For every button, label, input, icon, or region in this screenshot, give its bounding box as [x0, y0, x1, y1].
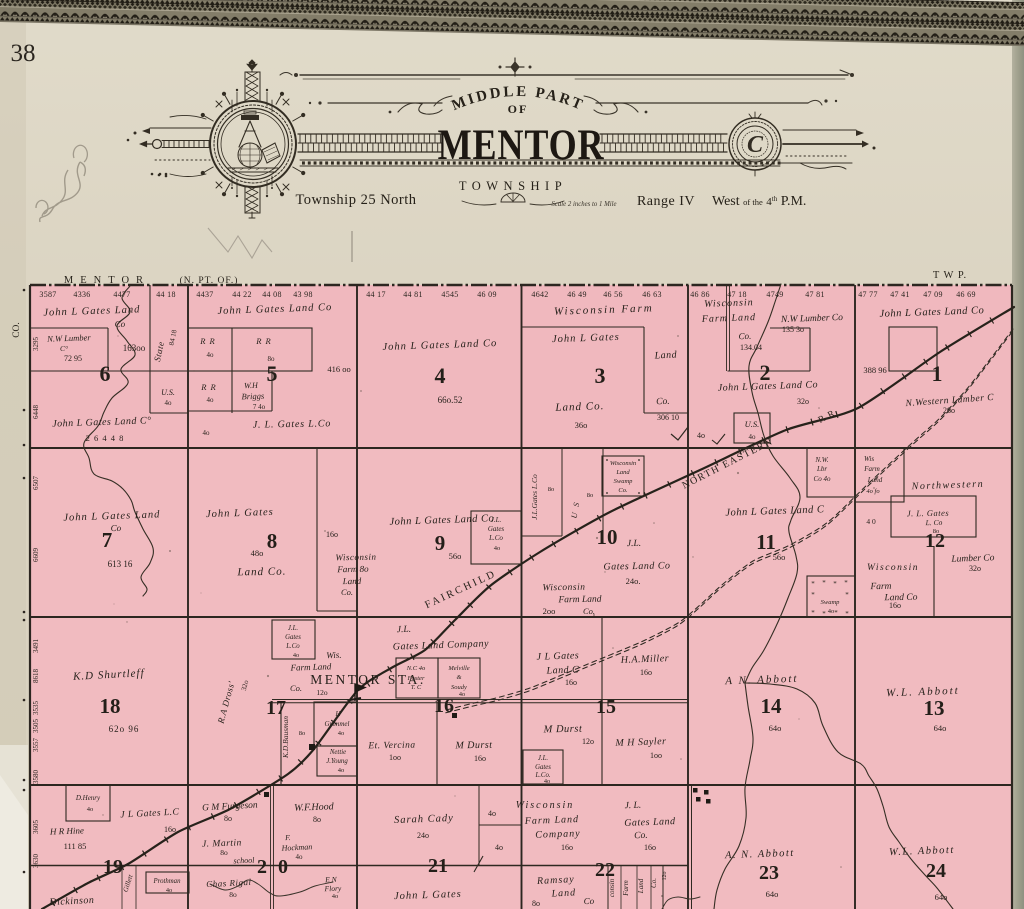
svg-text:J.L.: J.L.	[627, 539, 641, 549]
svg-text:4: 4	[435, 363, 446, 388]
svg-text:4o: 4o	[338, 767, 345, 774]
svg-text:H R Hine: H R Hine	[49, 825, 84, 836]
svg-text:2 0: 2 0	[257, 856, 291, 878]
svg-text:J.L.: J.L.	[491, 516, 502, 524]
svg-text:Wisconsin: Wisconsin	[610, 460, 636, 467]
svg-text:613 16: 613 16	[108, 559, 133, 569]
svg-text:22: 22	[595, 859, 615, 881]
svg-text:4o: 4o	[697, 431, 705, 440]
svg-text:4o: 4o	[203, 429, 211, 437]
svg-text:36o: 36o	[575, 420, 588, 430]
svg-text:24o: 24o	[417, 831, 429, 840]
svg-text:Wisconsin: Wisconsin	[335, 552, 376, 563]
svg-text:*: *	[822, 579, 826, 587]
svg-text:Wis.: Wis.	[326, 650, 342, 661]
svg-text:12o: 12o	[316, 688, 328, 697]
svg-text:4545: 4545	[441, 290, 458, 299]
svg-text:62o 96: 62o 96	[109, 724, 140, 734]
svg-text:44 22: 44 22	[232, 290, 252, 299]
svg-text:1oo: 1oo	[389, 753, 401, 762]
svg-text:Lbr: Lbr	[816, 465, 827, 473]
svg-text:R R: R R	[200, 382, 217, 392]
svg-text:Gates: Gates	[535, 764, 551, 771]
svg-text:J. L. Gates L.Co: J. L. Gates L.Co	[253, 418, 332, 430]
svg-text:*: *	[811, 580, 815, 588]
svg-text:Gates: Gates	[488, 525, 505, 533]
svg-text:Land C: Land C	[545, 664, 579, 676]
svg-text:TOWNSHIP: TOWNSHIP	[459, 179, 567, 193]
svg-text:T W P.: T W P.	[933, 270, 967, 281]
svg-text:Land Co.: Land Co.	[554, 400, 604, 414]
svg-text:4749: 4749	[766, 290, 783, 299]
svg-text:111 85: 111 85	[64, 841, 87, 851]
svg-text:Grimmel: Grimmel	[325, 720, 350, 728]
svg-text:Farm: Farm	[622, 880, 630, 897]
svg-text:48o: 48o	[251, 548, 264, 558]
svg-text:4o: 4o	[459, 691, 465, 698]
svg-text:R R: R R	[255, 336, 272, 346]
svg-text:Nettie: Nettie	[329, 749, 346, 756]
svg-text:W.L. Abbott: W.L. Abbott	[889, 845, 955, 858]
svg-text:4437: 4437	[196, 290, 213, 299]
svg-text:2 6 4 4 8: 2 6 4 4 8	[86, 433, 125, 443]
svg-text:Briggs: Briggs	[241, 391, 265, 402]
svg-text:Co.: Co.	[618, 487, 628, 494]
svg-text:6507: 6507	[32, 476, 40, 491]
svg-text:*: *	[833, 580, 837, 588]
svg-text:Land: Land	[653, 349, 678, 361]
svg-text:Scale 2 inches to 1 Mile: Scale 2 inches to 1 Mile	[551, 201, 616, 208]
svg-text:38: 38	[11, 40, 36, 67]
svg-text:Farm: Farm	[863, 465, 880, 473]
svg-text:*: *	[844, 579, 848, 587]
svg-text:*: *	[811, 591, 815, 599]
svg-text:4o: 4o	[488, 809, 496, 818]
svg-text:12o: 12o	[582, 737, 594, 746]
svg-text:14: 14	[761, 694, 783, 718]
svg-text:Ramsay: Ramsay	[536, 874, 575, 887]
svg-text:J. L. Gates: J. L. Gates	[907, 508, 950, 519]
svg-text:Co 4o: Co 4o	[814, 475, 831, 483]
svg-text:L.Co: L.Co	[285, 643, 300, 650]
svg-text:21: 21	[428, 855, 448, 877]
svg-text:66o.52: 66o.52	[438, 395, 463, 405]
svg-text:4642: 4642	[531, 290, 548, 299]
svg-text:Township 25 North: Township 25 North	[295, 192, 416, 208]
svg-text:16o: 16o	[640, 668, 652, 677]
svg-text:Wisconsin: Wisconsin	[867, 563, 919, 573]
svg-text:Swamp: Swamp	[614, 478, 634, 485]
svg-text:Wisconsin: Wisconsin	[542, 583, 585, 594]
svg-text:46 49: 46 49	[567, 290, 587, 299]
svg-text:*: *	[845, 591, 849, 599]
svg-text:47 41: 47 41	[890, 290, 910, 299]
svg-text:24o.: 24o.	[626, 576, 641, 586]
svg-text:12o: 12o	[662, 872, 668, 881]
svg-text:47 09: 47 09	[923, 290, 943, 299]
svg-text:8o: 8o	[299, 730, 306, 737]
svg-text:Co.: Co.	[290, 683, 302, 693]
svg-text:4o: 4o	[207, 396, 215, 404]
svg-text:Gates Land: Gates Land	[624, 816, 676, 829]
svg-text:*: *	[845, 610, 849, 618]
svg-text:*: *	[811, 609, 815, 617]
svg-text:6: 6	[100, 361, 111, 386]
svg-text:J.L.: J.L.	[288, 625, 298, 632]
svg-text:46 69: 46 69	[956, 290, 976, 299]
svg-text:4 0: 4 0	[866, 517, 876, 526]
svg-text:56o: 56o	[773, 552, 786, 562]
svg-text:4336: 4336	[73, 290, 90, 299]
svg-text:46 09: 46 09	[477, 290, 497, 299]
svg-text:Soudy: Soudy	[451, 684, 467, 691]
svg-text:1: 1	[932, 361, 943, 386]
svg-text:32o: 32o	[797, 397, 809, 406]
svg-text:64o: 64o	[769, 723, 782, 733]
svg-text:8618: 8618	[32, 669, 40, 684]
svg-text:4o: 4o	[544, 778, 550, 785]
svg-text:C: C	[747, 132, 764, 158]
svg-text:CO.: CO.	[12, 322, 22, 338]
svg-text:4o: 4o	[749, 433, 757, 441]
svg-text:16o: 16o	[644, 843, 656, 852]
svg-text:4o: 4o	[495, 843, 503, 852]
svg-text:134.04: 134.04	[740, 343, 762, 352]
svg-text:23: 23	[759, 862, 779, 884]
svg-text:1oo: 1oo	[650, 751, 662, 760]
svg-text:Company: Company	[535, 828, 581, 841]
svg-text:Farm Land: Farm Land	[701, 312, 757, 325]
svg-text:Foster: Foster	[407, 675, 425, 682]
svg-text:Farm Land: Farm Land	[557, 595, 601, 606]
svg-text:17: 17	[266, 697, 286, 719]
svg-text:Wisconsin: Wisconsin	[704, 297, 754, 310]
svg-text:135 3o: 135 3o	[782, 325, 804, 334]
svg-text:J.Young: J.Young	[326, 758, 348, 765]
svg-text:12: 12	[925, 530, 945, 552]
svg-text:4o: 4o	[332, 893, 339, 900]
svg-text:Land: Land	[615, 469, 630, 476]
svg-text:M Durst: M Durst	[454, 740, 492, 752]
svg-text:L. Co: L. Co	[925, 518, 943, 527]
svg-text:Et. Vercina: Et. Vercina	[367, 741, 416, 752]
svg-text:64o: 64o	[935, 892, 948, 902]
svg-text:Land: Land	[637, 878, 645, 894]
svg-text:Flory: Flory	[323, 884, 342, 894]
svg-text:3535: 3535	[32, 701, 40, 716]
svg-text:Prothman: Prothman	[153, 878, 182, 885]
svg-text:school: school	[233, 856, 255, 866]
svg-text:3: 3	[595, 363, 606, 388]
svg-text:Farm 8o: Farm 8o	[336, 564, 369, 575]
svg-text:U.S.: U.S.	[161, 388, 175, 397]
svg-text:44 08: 44 08	[262, 290, 282, 299]
svg-text:4o fo: 4o fo	[866, 488, 880, 495]
svg-text:J.L.: J.L.	[538, 755, 548, 762]
svg-text:56o: 56o	[449, 551, 462, 561]
svg-text:4o: 4o	[165, 399, 173, 407]
svg-text:4o: 4o	[338, 730, 345, 737]
svg-text:18: 18	[100, 694, 121, 718]
svg-text:Land: Land	[550, 887, 576, 899]
svg-text:44 18: 44 18	[156, 290, 176, 299]
svg-text:8o: 8o	[313, 815, 321, 824]
svg-text:24: 24	[926, 860, 946, 882]
svg-text:388 96: 388 96	[863, 365, 886, 375]
svg-text:4o: 4o	[207, 351, 215, 359]
svg-text:W.H: W.H	[244, 381, 259, 391]
svg-text:64o: 64o	[934, 723, 947, 733]
svg-text:16o: 16o	[889, 601, 901, 610]
svg-text:46 56: 46 56	[603, 290, 623, 299]
svg-text:Hockman: Hockman	[280, 842, 312, 853]
svg-text:32o: 32o	[969, 564, 981, 573]
svg-text:8o: 8o	[220, 848, 228, 857]
svg-text:3630: 3630	[32, 854, 40, 869]
svg-text:L.Co: L.Co	[488, 534, 503, 542]
svg-text:3295: 3295	[32, 337, 40, 352]
svg-text:West of the 4th P.M.: West of the 4th P.M.	[712, 194, 806, 209]
svg-text:46 63: 46 63	[642, 290, 662, 299]
svg-text:Wis: Wis	[864, 455, 874, 463]
svg-text:Land: Land	[867, 476, 883, 484]
svg-text:M Durst: M Durst	[542, 724, 583, 736]
svg-text:Co: Co	[114, 319, 125, 329]
svg-text:7: 7	[102, 528, 113, 552]
svg-text:Swamp: Swamp	[821, 599, 841, 606]
svg-text:T. C: T. C	[411, 684, 422, 691]
svg-text:13: 13	[924, 696, 945, 720]
svg-text:64o: 64o	[766, 889, 779, 899]
svg-text:C°: C°	[60, 344, 68, 353]
svg-text:3587: 3587	[39, 290, 56, 299]
svg-text:3557: 3557	[32, 738, 40, 753]
svg-text:8o: 8o	[224, 814, 232, 823]
svg-text:2oo: 2oo	[543, 606, 556, 616]
svg-text:5: 5	[267, 361, 278, 386]
svg-text:416 oo: 416 oo	[327, 364, 350, 374]
svg-text:J.L.Gates L.Co: J.L.Gates L.Co	[530, 474, 539, 520]
svg-text:Gates Land Co: Gates Land Co	[603, 560, 670, 572]
svg-text:Farm Land: Farm Land	[524, 814, 580, 827]
svg-text:3580: 3580	[32, 770, 40, 785]
svg-text:46 86: 46 86	[690, 290, 710, 299]
svg-text:4o: 4o	[296, 853, 304, 861]
svg-text:Land: Land	[342, 576, 362, 586]
svg-text:6609: 6609	[32, 548, 40, 563]
svg-text:Sarah Cady: Sarah Cady	[394, 813, 454, 826]
svg-text:3491: 3491	[32, 639, 40, 654]
svg-text:4477: 4477	[113, 290, 130, 299]
svg-text:4o: 4o	[494, 545, 501, 552]
svg-text:Co.: Co.	[634, 831, 648, 841]
svg-text:4o: 4o	[87, 806, 94, 813]
svg-text:3505: 3505	[32, 719, 40, 734]
svg-text:Melville: Melville	[447, 665, 469, 672]
svg-text:44 17: 44 17	[366, 290, 386, 299]
svg-text:Farm: Farm	[869, 582, 891, 592]
svg-text:44 81: 44 81	[403, 290, 423, 299]
svg-text:Co.: Co.	[738, 331, 751, 341]
svg-text:16o: 16o	[326, 530, 338, 539]
svg-text:OF: OF	[508, 102, 529, 116]
svg-text:4o: 4o	[293, 652, 299, 659]
svg-text:Range IV: Range IV	[637, 194, 695, 209]
svg-text:4o: 4o	[166, 887, 172, 894]
svg-text:Gates: Gates	[285, 634, 301, 641]
svg-text:E N: E N	[324, 875, 338, 884]
svg-text:N.C 4o: N.C 4o	[406, 665, 426, 672]
svg-text:Co.: Co.	[341, 587, 353, 597]
svg-text:4o: 4o	[828, 608, 835, 615]
svg-text:8o: 8o	[587, 492, 594, 499]
svg-text:16o: 16o	[164, 825, 176, 834]
svg-text:16: 16	[434, 695, 454, 717]
svg-text:16o: 16o	[474, 754, 486, 763]
svg-text:J.L.: J.L.	[397, 625, 412, 635]
svg-text:8o: 8o	[532, 899, 540, 908]
svg-text:163oo: 163oo	[123, 343, 146, 353]
svg-text:M H Sayler: M H Sayler	[614, 736, 666, 749]
svg-text:J. L.: J. L.	[624, 801, 641, 812]
svg-text:8: 8	[267, 529, 278, 553]
svg-text:8o: 8o	[229, 890, 237, 899]
svg-text:10: 10	[597, 525, 618, 549]
svg-text:306 10: 306 10	[657, 413, 679, 422]
svg-text:47 81: 47 81	[805, 290, 825, 299]
svg-text:*: *	[822, 610, 826, 618]
svg-text:consin: consin	[608, 878, 616, 897]
svg-text:MENTOR: MENTOR	[438, 121, 605, 169]
svg-text:16o: 16o	[561, 843, 573, 852]
svg-text:15: 15	[596, 696, 616, 718]
svg-text:16o: 16o	[565, 678, 577, 687]
svg-text:47 77: 47 77	[858, 290, 878, 299]
svg-text:19: 19	[103, 856, 123, 878]
svg-text:H.A.Miller: H.A.Miller	[620, 653, 670, 666]
svg-text:72 95: 72 95	[64, 354, 82, 363]
svg-text:43 98: 43 98	[293, 290, 313, 299]
svg-text:28o: 28o	[943, 406, 955, 415]
svg-text:Land Co.: Land Co.	[236, 566, 286, 579]
svg-text:R R: R R	[199, 336, 216, 346]
svg-text:U.S.: U.S.	[745, 419, 760, 429]
svg-text:9: 9	[435, 531, 446, 555]
svg-text:11: 11	[756, 530, 776, 554]
svg-text:6448: 6448	[32, 405, 40, 420]
svg-text:8o: 8o	[548, 486, 555, 493]
svg-text:K.D.Bausman: K.D.Bausman	[281, 716, 290, 759]
svg-text:N.W.: N.W.	[814, 456, 829, 464]
svg-text:*: *	[834, 609, 838, 617]
svg-text:H: H	[334, 710, 341, 718]
svg-text:Co: Co	[583, 896, 594, 906]
svg-text:N.W Lumber: N.W Lumber	[46, 332, 91, 344]
svg-text:7 4o: 7 4o	[253, 403, 266, 411]
svg-text:3605: 3605	[32, 820, 40, 835]
svg-text:Co.: Co.	[650, 878, 658, 888]
svg-text:Co.: Co.	[656, 397, 670, 407]
svg-text:D.Henry: D.Henry	[75, 794, 101, 802]
svg-text:J L Gates: J L Gates	[536, 650, 579, 662]
svg-text:F.: F.	[284, 833, 291, 842]
svg-text:Wisconsin: Wisconsin	[516, 800, 575, 811]
svg-text:W.F.Hood: W.F.Hood	[294, 801, 335, 813]
